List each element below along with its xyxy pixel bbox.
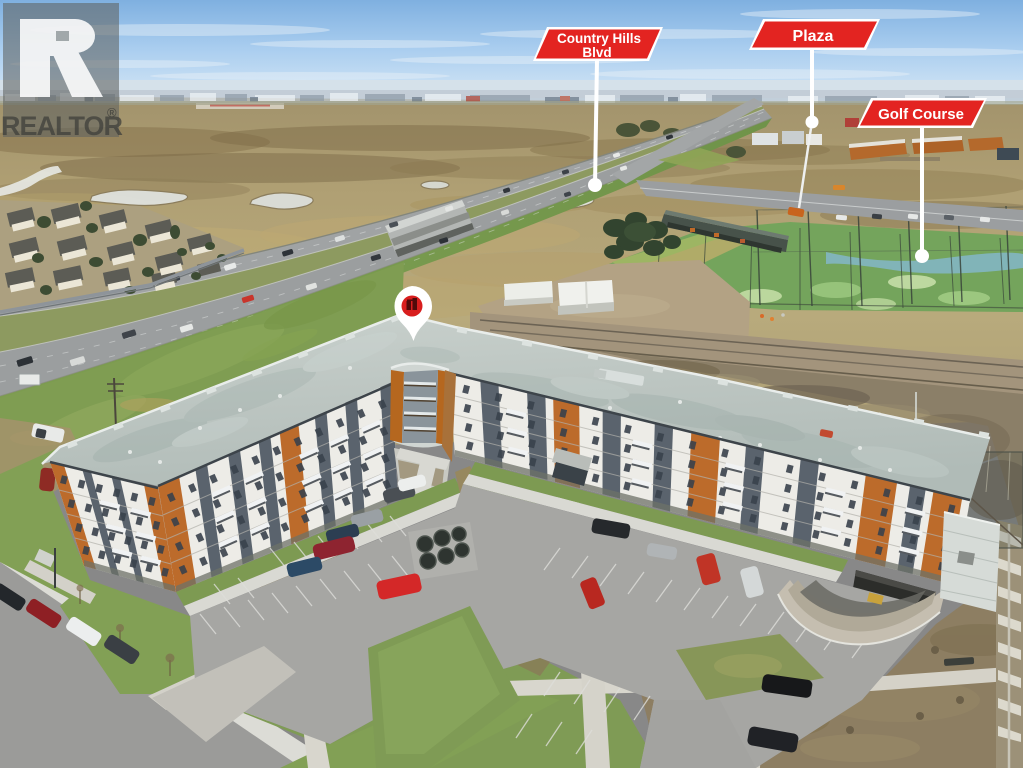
svg-text:Plaza: Plaza: [793, 28, 834, 45]
svg-text:Country Hills: Country Hills: [557, 31, 641, 46]
svg-text:®: ®: [107, 105, 117, 120]
svg-text:Blvd: Blvd: [582, 45, 611, 60]
svg-text:Golf Course: Golf Course: [878, 106, 964, 123]
svg-text:REALTOR: REALTOR: [1, 111, 123, 141]
